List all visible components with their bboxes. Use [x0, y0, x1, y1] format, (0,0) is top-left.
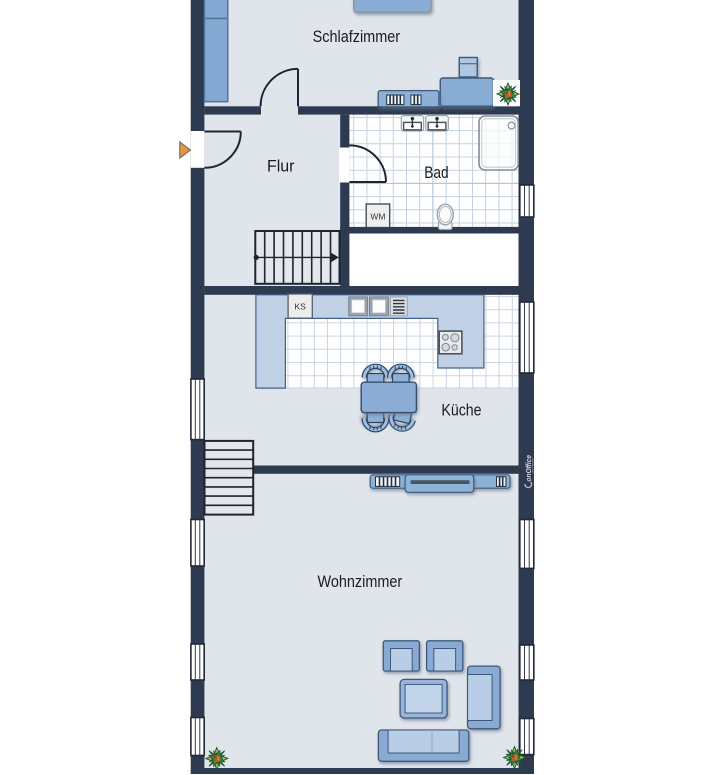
svg-text:WM: WM	[370, 212, 385, 222]
svg-text:Bad: Bad	[424, 163, 448, 182]
svg-text:Schlafzimmer: Schlafzimmer	[313, 27, 401, 46]
svg-text:Wohnzimmer: Wohnzimmer	[318, 572, 403, 591]
svg-text:smart websites: smart websites	[531, 457, 534, 474]
svg-text:Flur: Flur	[267, 157, 295, 176]
svg-text:KS: KS	[295, 302, 307, 312]
svg-text:Küche: Küche	[441, 400, 481, 419]
